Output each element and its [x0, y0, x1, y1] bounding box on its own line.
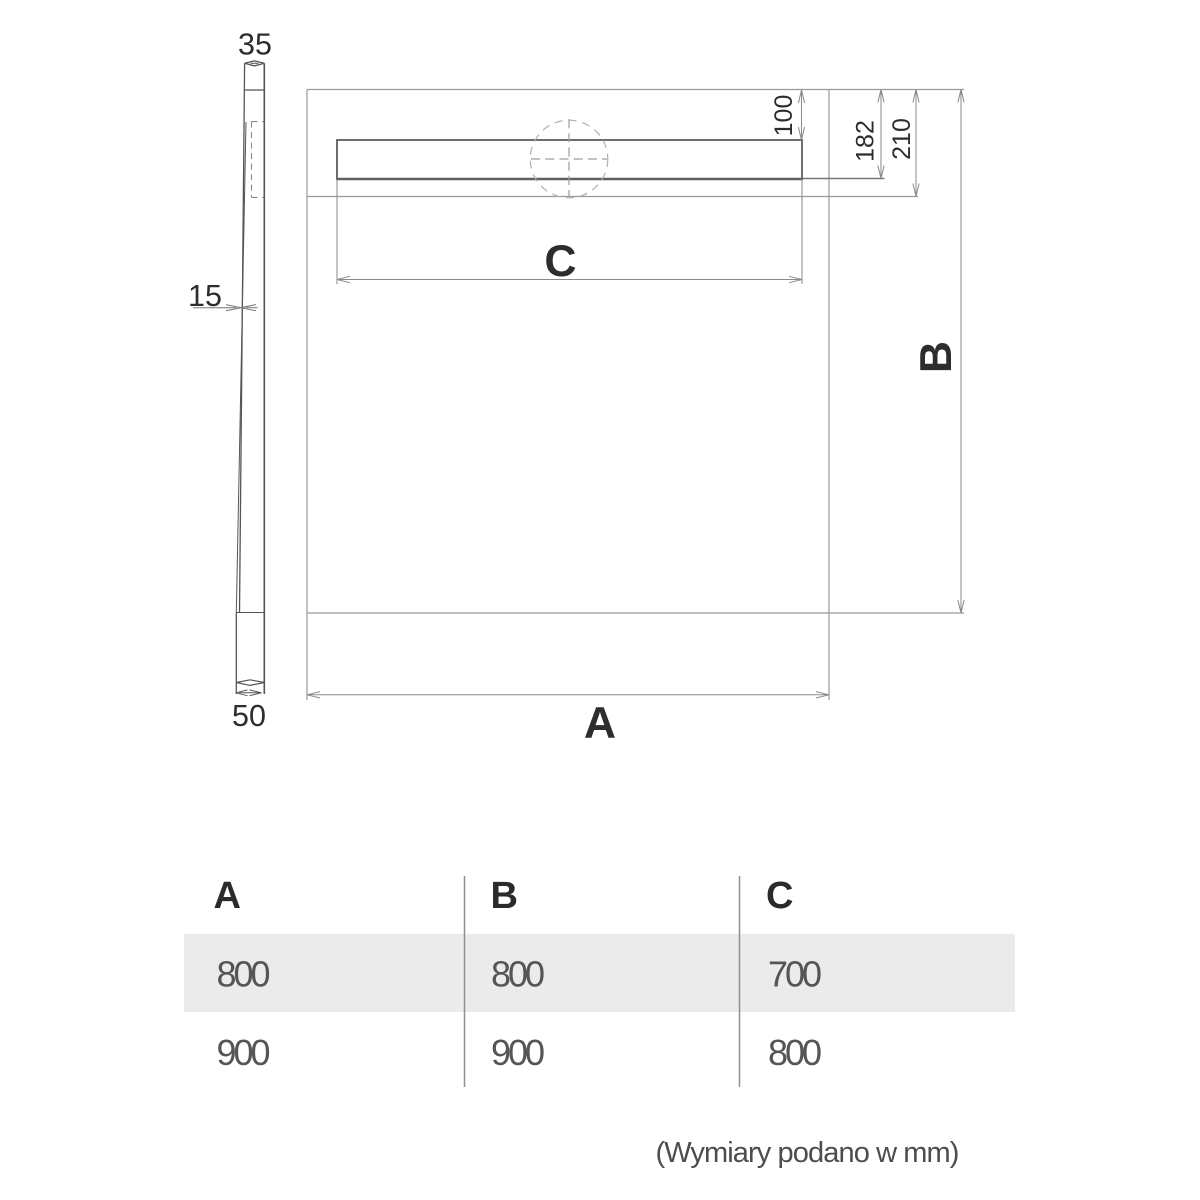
svg-text:C: C — [766, 875, 793, 917]
svg-text:900: 900 — [217, 1032, 270, 1073]
svg-text:C: C — [544, 237, 576, 286]
svg-text:15: 15 — [188, 279, 222, 313]
svg-text:800: 800 — [491, 954, 544, 995]
svg-text:35: 35 — [238, 28, 272, 62]
svg-text:700: 700 — [768, 954, 821, 995]
svg-text:50: 50 — [232, 699, 266, 733]
svg-text:B: B — [491, 875, 518, 917]
svg-text:182: 182 — [852, 120, 880, 162]
svg-text:100: 100 — [770, 95, 798, 137]
svg-text:900: 900 — [491, 1032, 544, 1073]
svg-text:B: B — [912, 341, 961, 373]
svg-text:A: A — [214, 875, 241, 917]
svg-text:210: 210 — [888, 118, 916, 160]
svg-text:800: 800 — [768, 1032, 821, 1073]
svg-text:800: 800 — [217, 954, 270, 995]
svg-text:A: A — [584, 699, 616, 748]
svg-text:(Wymiary podano w mm): (Wymiary podano w mm) — [655, 1137, 958, 1169]
